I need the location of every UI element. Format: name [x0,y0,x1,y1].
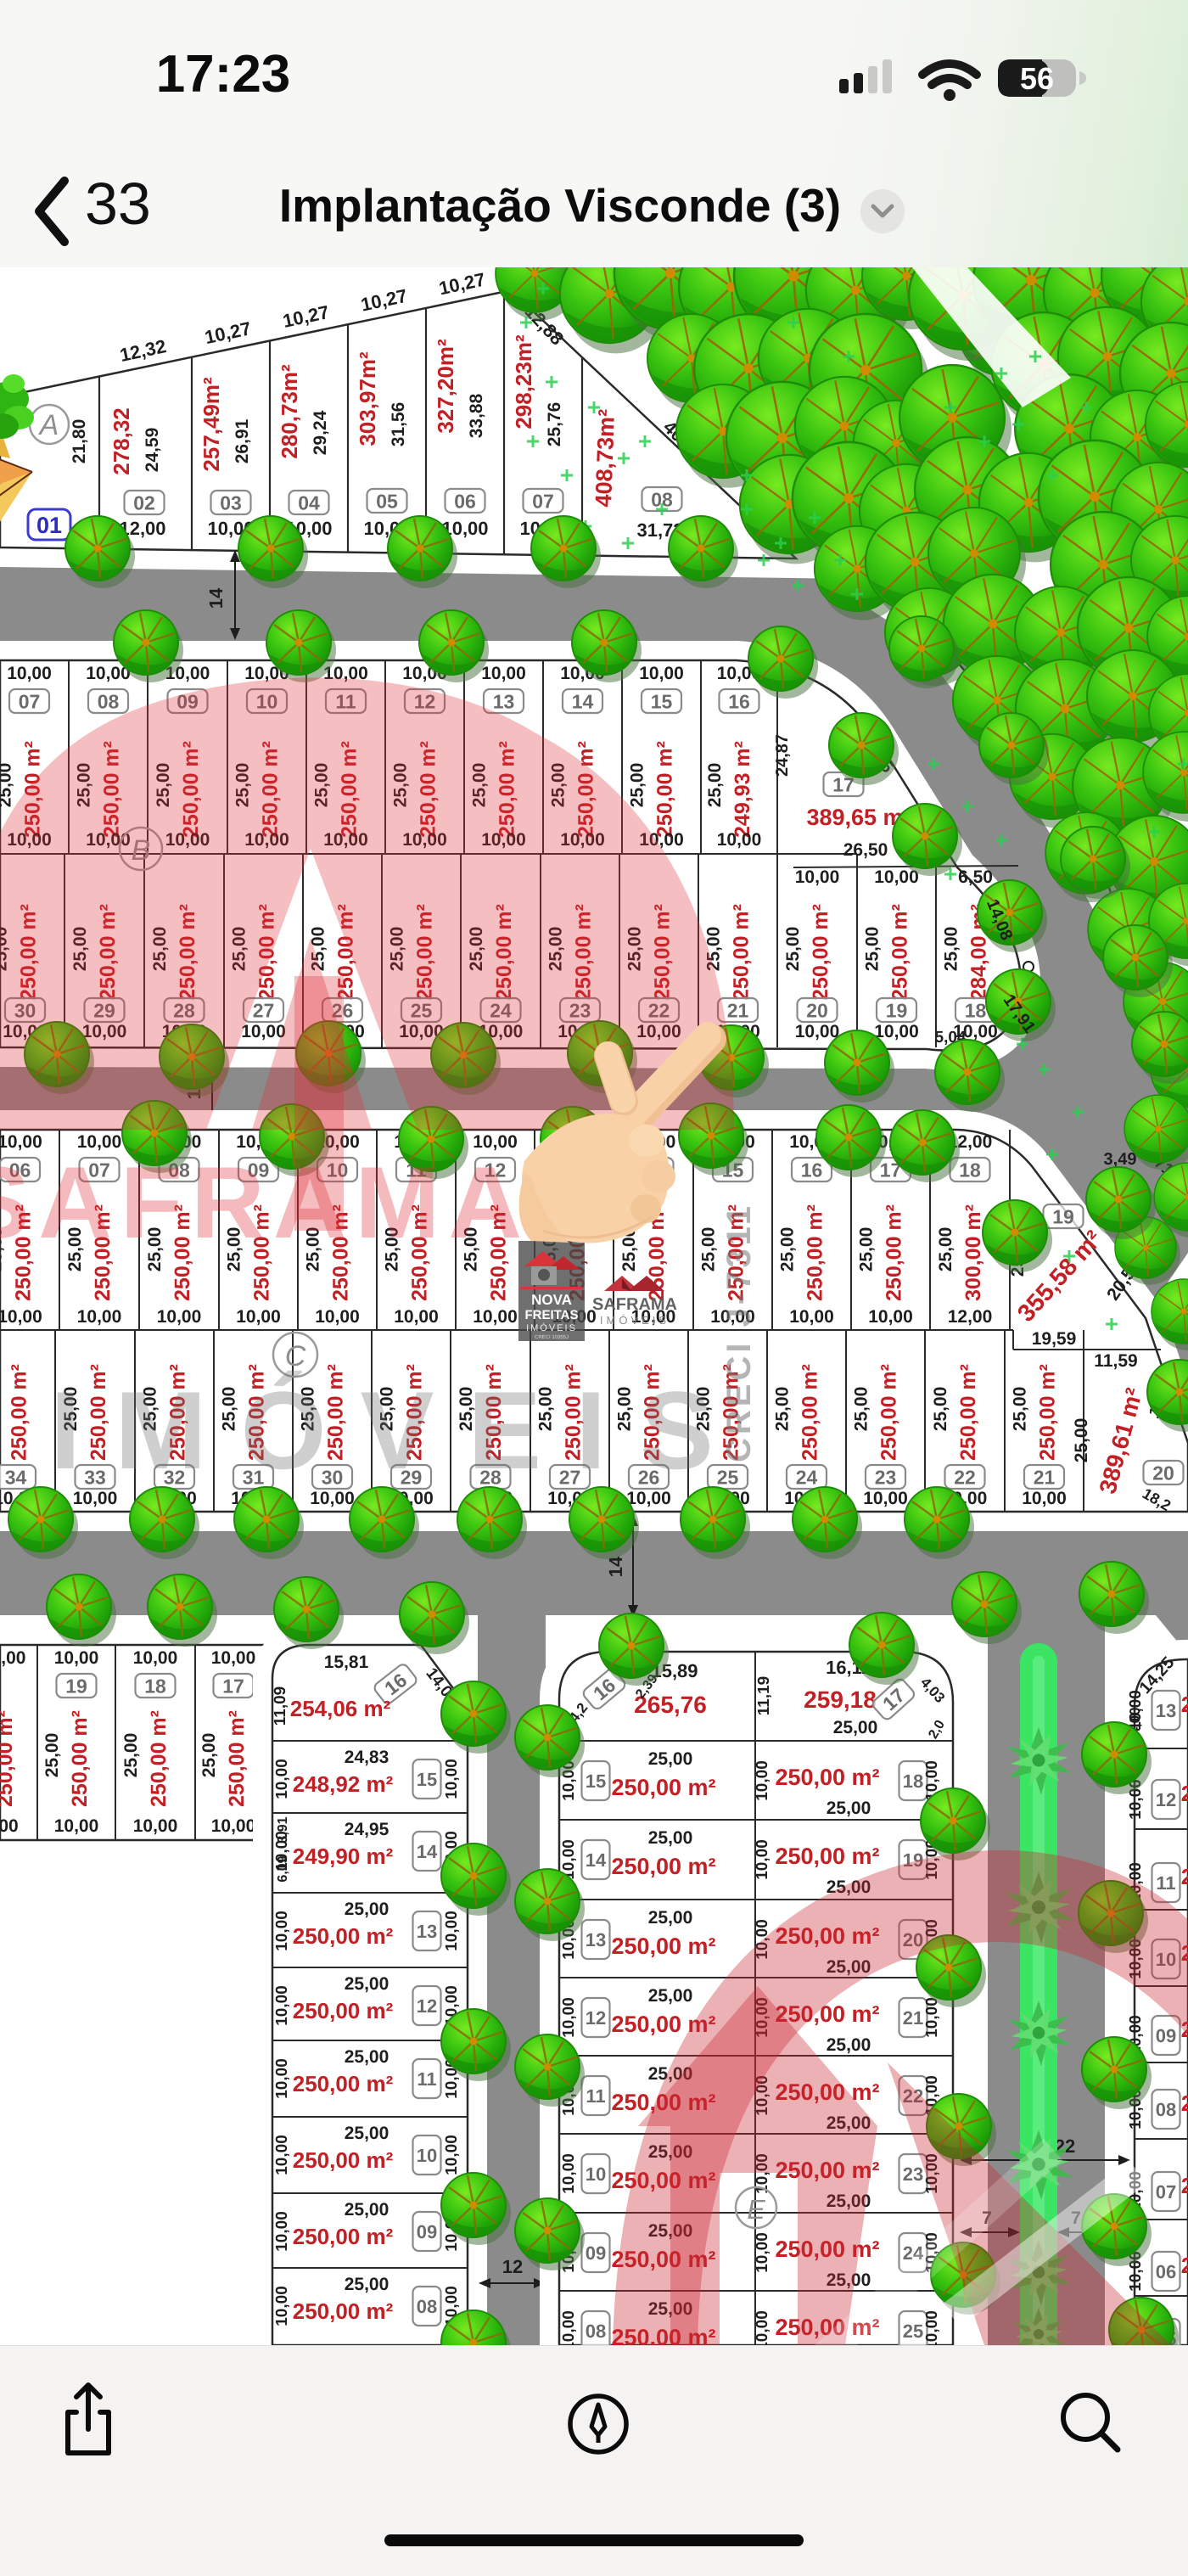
svg-text:250,00 m²: 250,00 m² [293,2071,394,2096]
svg-text:327,20m²: 327,20m² [433,339,458,434]
svg-text:16: 16 [801,1159,823,1181]
svg-text:16: 16 [728,690,750,712]
svg-text:25,00: 25,00 [773,1387,793,1432]
svg-text:25,00: 25,00 [863,927,883,972]
svg-text:250,00 m²: 250,00 m² [883,1204,906,1301]
svg-text:14: 14 [586,1849,607,1871]
svg-text:10,00: 10,00 [473,1307,518,1327]
svg-text:10,00: 10,00 [7,664,52,683]
svg-text:298,23m²: 298,23m² [511,334,536,429]
svg-text:25,00: 25,00 [648,1828,693,1848]
svg-text:10,00: 10,00 [795,867,840,887]
svg-text:08: 08 [417,2296,437,2317]
svg-text:14: 14 [572,690,594,712]
svg-text:10,00: 10,00 [560,2153,578,2194]
svg-text:19: 19 [65,1675,87,1697]
svg-text:250,00 m²: 250,00 m² [293,2147,394,2173]
svg-text:250,00 m²: 250,00 m² [611,1933,715,1959]
svg-text:10,00: 10,00 [754,1839,771,1880]
svg-text:IMÓVEIS: IMÓVEIS [50,1368,748,1492]
svg-text:254,06 m²: 254,06 m² [290,1696,391,1721]
svg-text:25,00: 25,00 [857,1227,877,1272]
svg-text:31,56: 31,56 [389,402,408,447]
svg-text:250,00 m²: 250,00 m² [293,2224,394,2249]
svg-text:13: 13 [586,1929,606,1950]
svg-text:23: 23 [903,2164,923,2185]
svg-text:10,00: 10,00 [273,1985,291,2026]
svg-text:25,00: 25,00 [648,1908,693,1928]
svg-text:10,00: 10,00 [443,1911,461,1951]
svg-text:15: 15 [586,1771,606,1792]
svg-text:249,93 m²: 249,93 m² [731,741,754,838]
svg-text:CRECI J-7311: CRECI J-7311 [720,1203,758,1462]
svg-text:06: 06 [1156,2261,1176,2282]
svg-text:09: 09 [586,2242,606,2264]
svg-text:13: 13 [493,690,515,712]
svg-text:25,00: 25,00 [827,1799,871,1818]
svg-text:250,00 m²: 250,00 m² [653,741,677,838]
svg-text:10,00: 10,00 [54,1816,99,1836]
svg-text:18: 18 [965,999,987,1021]
svg-text:08: 08 [586,2321,606,2342]
svg-text:10,00: 10,00 [211,1648,256,1668]
svg-text:10,00: 10,00 [639,664,684,683]
svg-text:11,09: 11,09 [272,1686,289,1726]
svg-text:11,59: 11,59 [1094,1351,1137,1371]
svg-text:12: 12 [1156,1789,1176,1810]
svg-text:10,00: 10,00 [717,830,762,850]
svg-text:IMÓVEIS: IMÓVEIS [600,1314,670,1327]
svg-text:250,00 m²: 250,00 m² [0,1710,17,1807]
svg-text:6,50: 6,50 [958,867,993,887]
svg-text:250,00 m²: 250,00 m² [730,904,754,1001]
svg-text:10,00: 10,00 [273,2058,291,2099]
svg-text:10,00: 10,00 [754,1760,771,1801]
svg-text:25,00: 25,00 [705,763,725,808]
svg-text:25,00: 25,00 [0,763,15,808]
svg-text:09: 09 [417,2221,437,2242]
svg-text:00: 00 [0,1816,19,1836]
svg-text:2: 2 [1181,1692,1188,1717]
svg-text:10: 10 [417,2145,437,2166]
svg-text:09: 09 [1156,2025,1176,2046]
svg-text:07: 07 [19,690,41,712]
svg-text:14: 14 [417,1841,438,1862]
svg-text:10,00: 10,00 [236,1307,281,1327]
svg-text:25,00: 25,00 [345,1900,389,1919]
svg-text:08: 08 [98,690,120,712]
svg-text:249,90 m²: 249,90 m² [293,1844,394,1869]
svg-text:21: 21 [727,999,749,1021]
svg-text:250,00 m²: 250,00 m² [611,1775,715,1800]
svg-text:10,00: 10,00 [795,1022,840,1041]
svg-text:3,49: 3,49 [1104,1150,1137,1169]
svg-text:19,59: 19,59 [1032,1329,1077,1349]
svg-text:25,00: 25,00 [833,1718,878,1737]
svg-text:408,73m²: 408,73m² [591,408,619,508]
svg-text:248,92 m²: 248,92 m² [293,1771,394,1797]
svg-text:10: 10 [586,2164,606,2185]
svg-text:07: 07 [1156,2181,1176,2203]
svg-text:303,97m²: 303,97m² [355,351,380,446]
svg-text:250,00 m²: 250,00 m² [1036,1364,1060,1461]
svg-text:24,59: 24,59 [143,428,162,473]
svg-text:A: A [38,409,59,441]
svg-text:300,00 m²: 300,00 m² [961,1204,985,1301]
svg-text:20: 20 [806,999,828,1021]
svg-text:10,00: 10,00 [273,2286,291,2326]
svg-text:25,00: 25,00 [345,1974,389,1994]
svg-text:250,00 m²: 250,00 m² [225,1710,249,1807]
svg-text:25,00: 25,00 [648,1749,693,1769]
svg-text:25,00: 25,00 [827,2035,871,2055]
svg-text:24,87: 24,87 [773,734,792,777]
svg-text:24: 24 [796,1466,818,1488]
svg-text:02: 02 [133,491,155,514]
svg-text:18: 18 [959,1159,981,1181]
svg-text:25,00: 25,00 [345,2275,389,2294]
svg-text:250,00 m²: 250,00 m² [799,1364,822,1461]
svg-text:25,00: 25,00 [628,763,647,808]
svg-text:01: 01 [36,513,62,538]
svg-text:250,00 m²: 250,00 m² [8,1364,31,1461]
svg-text:257,49m²: 257,49m² [199,377,224,472]
svg-text:250,00 m²: 250,00 m² [293,1998,394,2023]
svg-text:10,00: 10,00 [443,1759,461,1799]
svg-text:6,09: 6,09 [276,1855,290,1882]
svg-text:15: 15 [417,1769,437,1790]
svg-text:250,00 m²: 250,00 m² [611,1854,715,1879]
svg-text:0,00: 0,00 [0,1648,25,1668]
svg-text:25,00: 25,00 [345,2047,389,2067]
svg-text:25,00: 25,00 [783,927,803,972]
svg-text:25,00: 25,00 [42,1733,62,1778]
svg-text:25,00: 25,00 [931,1387,950,1432]
svg-text:SAFRAMA: SAFRAMA [592,1295,677,1314]
svg-text:250,00 m²: 250,00 m² [68,1710,92,1807]
svg-text:10,00: 10,00 [157,1307,202,1327]
svg-text:25,00: 25,00 [648,1986,693,2006]
svg-text:250,00 m²: 250,00 m² [293,1923,394,1949]
svg-text:10,00: 10,00 [273,2211,291,2252]
svg-text:25,00: 25,00 [345,2200,389,2220]
svg-text:12,00: 12,00 [948,1307,993,1327]
svg-text:10,00: 10,00 [315,1307,360,1327]
svg-text:2: 2 [1181,2253,1188,2278]
svg-text:24,83: 24,83 [345,1748,389,1767]
svg-text:NOVA: NOVA [531,1292,572,1308]
svg-text:23: 23 [875,1466,897,1488]
svg-text:10,00: 10,00 [77,1307,122,1327]
svg-text:CRECI 10355J: CRECI 10355J [535,1334,569,1340]
svg-text:10,00: 10,00 [863,1489,908,1508]
svg-text:250,00 m²: 250,00 m² [293,2298,394,2324]
svg-text:25,00: 25,00 [778,1227,798,1272]
svg-text:10,00: 10,00 [54,1648,99,1668]
svg-text:25,00: 25,00 [942,927,961,972]
svg-text:11: 11 [417,2068,436,2090]
svg-text:21: 21 [903,2007,923,2029]
svg-text:18: 18 [144,1675,166,1697]
svg-text:25,00: 25,00 [345,2124,389,2143]
svg-text:14: 14 [205,587,227,609]
svg-text:25: 25 [903,2321,923,2342]
svg-text:278,32: 278,32 [109,407,134,475]
svg-text:11: 11 [586,2085,605,2107]
svg-text:12: 12 [417,1995,437,2017]
svg-text:250,00 m²: 250,00 m² [956,1364,980,1461]
svg-text:2: 2 [1181,2173,1188,2198]
svg-text:250,00 m²: 250,00 m² [877,1364,901,1461]
svg-text:12: 12 [586,2007,606,2029]
svg-text:15: 15 [651,690,673,712]
svg-text:19: 19 [1052,1205,1074,1227]
svg-text:19: 19 [886,999,908,1021]
svg-text:29,24: 29,24 [311,410,330,455]
svg-text:10,00: 10,00 [211,1816,256,1836]
svg-text:25,76: 25,76 [545,402,564,447]
svg-text:SAFRAMA: SAFRAMA [0,1146,530,1260]
svg-text:IMÓVEIS: IMÓVEIS [526,1322,577,1333]
svg-text:10,00: 10,00 [754,2232,771,2273]
svg-text:10,00: 10,00 [133,1816,178,1836]
svg-text:25,00: 25,00 [0,1387,2,1432]
svg-text:250,00 m²: 250,00 m² [775,1844,879,1869]
svg-text:05: 05 [376,490,398,512]
svg-text:259,18: 259,18 [804,1686,877,1713]
svg-text:34: 34 [5,1466,27,1488]
svg-text:FREITAS: FREITAS [524,1308,578,1322]
svg-text:250,00 m²: 250,00 m² [775,1765,879,1790]
svg-text:E: E [747,2194,765,2225]
svg-text:2: 2 [1181,1781,1188,1806]
svg-text:15,81: 15,81 [324,1653,369,1672]
svg-text:10,00: 10,00 [874,1022,919,1041]
svg-text:04: 04 [298,491,320,514]
svg-text:12: 12 [502,2256,523,2277]
svg-text:10,00: 10,00 [133,1648,178,1668]
svg-text:56: 56 [1020,61,1054,96]
svg-text:17: 17 [222,1675,244,1697]
svg-text:25,00: 25,00 [699,1227,719,1272]
svg-text:250,00 m²: 250,00 m² [804,1204,827,1301]
svg-text:27: 27 [253,999,275,1021]
svg-text:33,88: 33,88 [467,393,486,438]
svg-text:25,00: 25,00 [121,1733,141,1778]
svg-text:10,00: 10,00 [241,1022,286,1041]
svg-text:10,00: 10,00 [273,2135,291,2175]
svg-text:07: 07 [532,490,554,512]
svg-text:06: 06 [454,490,476,512]
svg-text:250,00 m²: 250,00 m² [809,904,832,1001]
svg-text:10,00: 10,00 [273,1759,291,1799]
svg-text:10,00: 10,00 [443,2135,461,2175]
svg-text:280,73m²: 280,73m² [277,364,302,459]
svg-text:25,00: 25,00 [1011,1387,1030,1432]
svg-text:10,00: 10,00 [0,1307,42,1327]
svg-text:25,00: 25,00 [936,1227,955,1272]
svg-text:22: 22 [954,1466,976,1488]
svg-text:13: 13 [417,1921,437,1942]
svg-text:10,00: 10,00 [789,1307,834,1327]
svg-text:11,19: 11,19 [755,1676,773,1716]
svg-text:20: 20 [1152,1462,1174,1484]
svg-text:3,91: 3,91 [276,1816,290,1843]
svg-text:26,91: 26,91 [233,418,252,463]
svg-text:10,00: 10,00 [1022,1489,1067,1508]
svg-text:24,95: 24,95 [345,1820,389,1839]
svg-text:250,00 m²: 250,00 m² [888,904,912,1001]
svg-text:25,00: 25,00 [199,1733,219,1778]
svg-text:26,50: 26,50 [843,840,888,860]
svg-text:21: 21 [1034,1466,1056,1488]
svg-text:10,00: 10,00 [560,1997,578,2038]
svg-text:2: 2 [1181,1864,1188,1889]
svg-text:10,00: 10,00 [481,664,526,683]
svg-text:250,00 m²: 250,00 m² [147,1710,171,1807]
svg-text:18: 18 [903,1771,923,1792]
svg-text:10,00: 10,00 [868,1307,913,1327]
svg-text:13: 13 [1156,1700,1176,1721]
svg-text:11: 11 [1156,1872,1175,1894]
svg-text:25,00: 25,00 [852,1387,871,1432]
svg-text:21,80: 21,80 [70,419,89,464]
svg-text:08: 08 [1156,2099,1176,2120]
svg-text:10,00: 10,00 [273,1911,291,1951]
svg-text:2: 2 [1181,2091,1188,2116]
svg-text:25,00: 25,00 [1072,1418,1091,1463]
svg-text:03: 03 [220,491,242,514]
svg-text:10,00: 10,00 [394,1307,439,1327]
